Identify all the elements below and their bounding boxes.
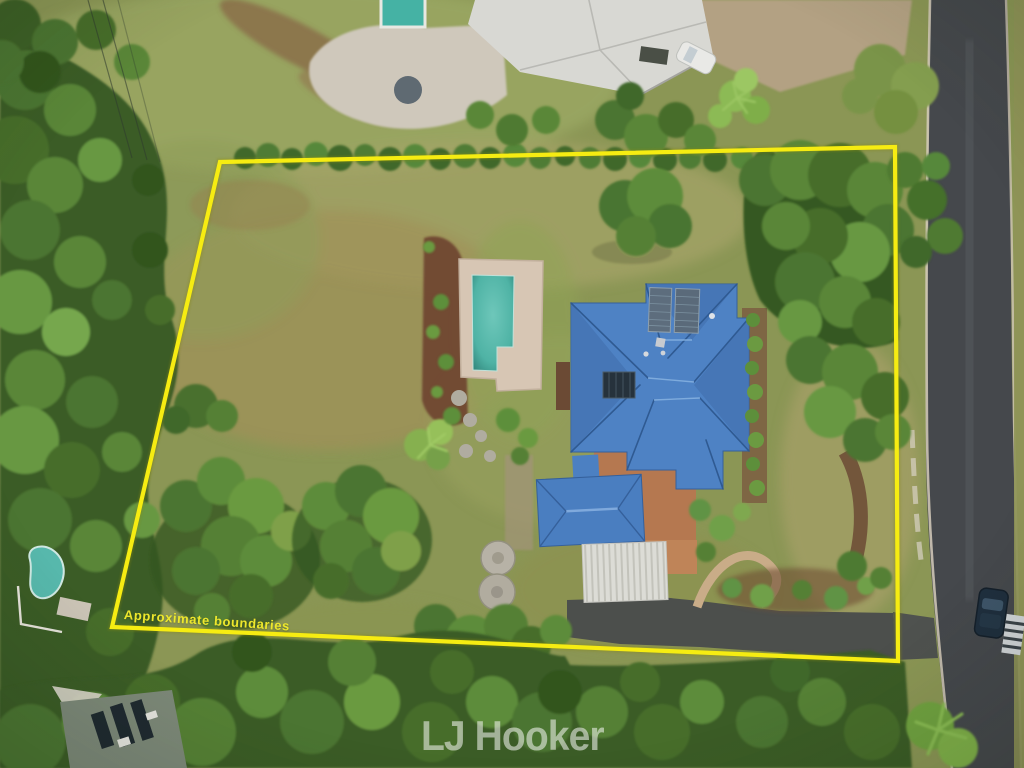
- aerial-property-photo: Approximate boundaries LJ Hooker: [0, 0, 1024, 768]
- boundary-line: [112, 147, 898, 661]
- brand-watermark: LJ Hooker: [421, 712, 604, 760]
- boundary-overlay: [0, 0, 1024, 768]
